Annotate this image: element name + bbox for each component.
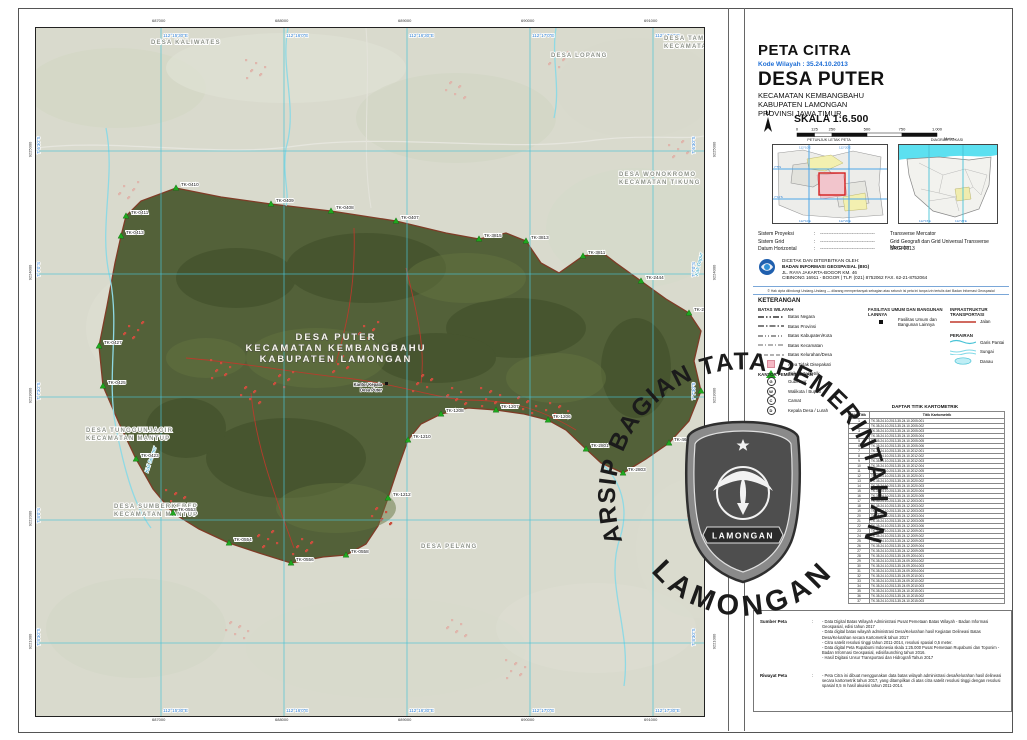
svg-text:7°7′0″S: 7°7′0″S — [36, 262, 41, 277]
kartometrik-point-label: TK-0423 — [141, 453, 159, 458]
svg-text:7°8′30″S: 7°8′30″S — [36, 628, 41, 646]
kartometrik-point-label: TK-2803 — [628, 467, 646, 472]
svg-text:7°8′30″S: 7°8′30″S — [691, 628, 696, 646]
svg-text:7°8′0″S: 7°8′0″S — [36, 508, 41, 523]
kartometrik-point-label: TK-0413 — [126, 230, 144, 235]
legend-batas-group: BATAS WILAYAH Batas Negara Batas Provins… — [758, 307, 866, 379]
svg-text:7°6′30″S: 7°6′30″S — [691, 136, 696, 154]
svg-text:112°10′E: 112°10′E — [799, 219, 811, 223]
svg-text:112°20′E: 112°20′E — [839, 219, 851, 223]
legend-item: Area Tidak Disepakati — [758, 360, 866, 370]
legend-item: Batas Provinsi — [758, 322, 866, 332]
legend-item: Jalan — [950, 317, 1012, 327]
legend-item: Batas Kecamatan — [758, 341, 866, 351]
kartometrik-point-label: TK-0558 — [351, 549, 369, 554]
svg-text:112°17′0″E: 112°17′0″E — [532, 708, 554, 713]
svg-text:112°15′30″E: 112°15′30″E — [163, 33, 188, 38]
north-arrow-icon: U — [760, 108, 778, 136]
kartometrik-point-label: TK-0408 — [336, 205, 354, 210]
svg-text:500: 500 — [864, 127, 871, 132]
svg-text:750: 750 — [899, 127, 906, 132]
legend-infra-group: INFRASTRUKTUR TRANSPORTASI Jalan PERAIRA… — [950, 307, 1012, 366]
publisher-line: CIBINONG 16911 - BOGOR | TLP. (021) 8752… — [782, 275, 1008, 281]
admin-kecamatan: KECAMATAN KEMBANGBAHU — [758, 91, 864, 100]
kartometrik-table[interactable]: No. Titik Titik Kartometrik 1TK.35.24.10… — [848, 411, 1005, 604]
legend-item: Batas Kabupaten/Kota — [758, 331, 866, 341]
kartometrik-point-label: TK-0411 — [131, 210, 149, 215]
svg-text:112°25′E: 112°25′E — [955, 219, 967, 223]
svg-text:0: 0 — [796, 127, 799, 132]
kartometrik-point-label: TK-0556 — [296, 557, 314, 562]
neighbor-village-label: DESA KALIWATES — [151, 40, 221, 46]
map-notes: Sumber Peta : Data Digital Batas Wilayah… — [753, 610, 1012, 712]
svg-text:112°16′0″E: 112°16′0″E — [286, 708, 308, 713]
svg-text:7°10′S: 7°10′S — [774, 195, 783, 199]
kartometrik-point-label: TK-1208 — [446, 408, 464, 413]
legend-item: Batas Kelurahan/Desa — [758, 350, 866, 360]
svg-text:112°16′30″E: 112°16′30″E — [409, 708, 434, 713]
page-title: DESA PUTER — [758, 69, 885, 91]
svg-text:112°16′0″E: 112°16′0″E — [286, 33, 308, 38]
svg-text:7°7′30″S: 7°7′30″S — [691, 382, 696, 400]
region-code: Kode Wilayah : 35.24.10.2013 — [758, 61, 848, 68]
svg-text:112°20′E: 112°20′E — [839, 146, 851, 150]
svg-text:1.000: 1.000 — [932, 127, 943, 132]
svg-text:112°15′E: 112°15′E — [919, 219, 931, 223]
divider-line — [728, 8, 729, 731]
legend-item: Batas Negara — [758, 312, 866, 322]
svg-text:125: 125 — [811, 127, 818, 132]
svg-text:7°7′30″S: 7°7′30″S — [36, 382, 41, 400]
legend-item: GGubernur — [758, 377, 868, 387]
legend-item: Danau — [950, 357, 1012, 367]
legend-item: Garis Pantai — [950, 338, 1012, 348]
kartometrik-point-label: TK-0410 — [181, 182, 199, 187]
svg-text:7°6′30″S: 7°6′30″S — [36, 136, 41, 154]
big-logo — [758, 258, 778, 278]
svg-text:7°5′S: 7°5′S — [774, 165, 781, 169]
table-col-no: No. Titik — [849, 412, 870, 419]
kartometrik-point-label: TK-3815 — [484, 233, 502, 238]
table-col-name: Titik Kartometrik — [870, 412, 1005, 419]
svg-text:U: U — [766, 110, 771, 117]
projection-row: Sistem Proyeksi:------------------------… — [758, 231, 1008, 237]
inset-map-location[interactable]: 112°10′E112°20′E 7°5′S7°10′S 112°10′E112… — [772, 144, 888, 224]
svg-text:250: 250 — [829, 127, 836, 132]
legend-item: Fasilitas Umum dan Bangunan Lainnya — [868, 317, 948, 327]
svg-text:112°17′0″E: 112°17′0″E — [532, 33, 554, 38]
kartometrik-point-label: TK-1210 — [413, 434, 431, 439]
svg-text:7°8′0″S: 7°8′0″S — [691, 508, 696, 523]
legend-item: WWalikota / Bupati — [758, 387, 868, 397]
table-row: 37TK.35.24.10.2013-35.24.10.2015.003 — [849, 599, 1005, 604]
inset-right-caption: DIAGRAM LOKASI — [898, 138, 996, 142]
kartometrik-point-label: TK-3811 — [588, 250, 606, 255]
publisher-block: DICETAK DAN DITERBITKAN OLEH:BADAN INFOR… — [782, 258, 1008, 281]
neighbor-village-label: DESA LOPANG — [551, 53, 608, 59]
table-title: DAFTAR TITIK KARTOMETRIK — [845, 404, 1005, 409]
svg-text:112°15′30″E: 112°15′30″E — [163, 708, 188, 713]
kartometrik-point-label: TK-0554 — [234, 537, 252, 542]
map-canvas[interactable]: 112°15′30″E112°15′30″E112°16′0″E112°16′0… — [35, 27, 705, 717]
map-sheet: 112°15′30″E112°15′30″E112°16′0″E112°16′0… — [0, 0, 1027, 740]
kartometrik-point-label: TK-1206 — [553, 414, 571, 419]
svg-text:112°16′30″E: 112°16′30″E — [409, 33, 434, 38]
projection-row: Datum Horizontal:-----------------------… — [758, 246, 1008, 252]
satellite-map[interactable]: 112°15′30″E112°15′30″E112°16′0″E112°16′0… — [36, 28, 704, 716]
inset-map-regency[interactable]: 112°15′E112°25′E — [898, 144, 998, 224]
scale-label: SKALA 1:6.500 — [794, 113, 868, 125]
kartometrik-point-label: TK-1207 — [501, 404, 519, 409]
legend-item: Sungai — [950, 347, 1012, 357]
neighbor-village-label: DESA PELANG — [421, 544, 477, 550]
kartometrik-point-label: TK-1212 — [393, 492, 411, 497]
kartometrik-point-label: TK-2444 — [646, 275, 664, 280]
kartometrik-point-label: TK-4611 — [674, 437, 692, 442]
svg-text:112°10′E: 112°10′E — [799, 146, 811, 150]
kartometrik-point-label: TK-0425 — [108, 380, 126, 385]
kartometrik-point-label: TK-0553 — [178, 507, 196, 512]
divider-line — [744, 8, 745, 731]
kartometrik-point-label: TK-0407 — [401, 215, 419, 220]
kartometrik-point-label: TK-0427 — [104, 340, 122, 345]
svg-text:112°17′30″E: 112°17′30″E — [655, 708, 680, 713]
kartometrik-point-label: TK-0409 — [276, 198, 294, 203]
copyright-strip: © Hak cipta dilindungi Undang-Undang — d… — [753, 286, 1009, 295]
inset-left-caption: PETUNJUK LETAK PETA — [772, 138, 886, 142]
kartometrik-point-label: TK-3813 — [531, 235, 549, 240]
kartometrik-point-label: TK-2443 — [694, 307, 704, 312]
map-type-title: PETA CITRA — [758, 42, 851, 59]
kartometrik-point-label: TK-2801 — [591, 443, 609, 448]
legend-fasilitas-group: FASILITAS UMUM DAN BANGUNAN LAINNYA Fasi… — [868, 307, 948, 327]
legend-title: KETERANGAN — [758, 298, 800, 304]
